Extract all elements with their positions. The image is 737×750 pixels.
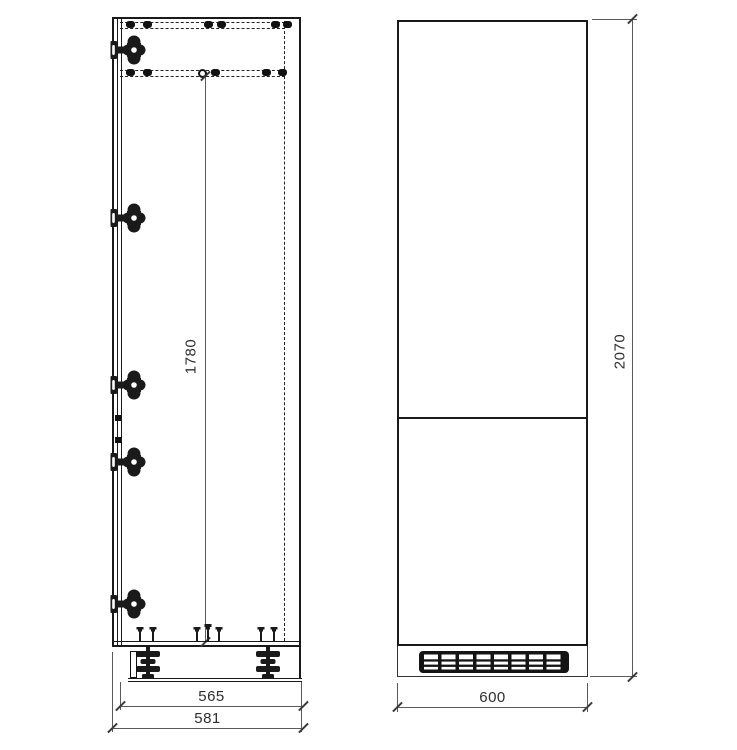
screw-icon — [215, 627, 223, 642]
plinth-bottom-line — [128, 678, 302, 679]
dimension-line-565 — [120, 706, 303, 707]
dimension-label-overall-depth: 581 — [112, 711, 303, 726]
dimension-line-600 — [397, 707, 588, 708]
front-view: 600 2070 — [360, 0, 737, 750]
ventilation-grille-icon — [419, 651, 569, 673]
screw-icon — [257, 627, 265, 642]
dimension-label-carcass-depth: 565 — [120, 689, 303, 704]
side-view: 1780 — [0, 0, 360, 750]
dimension-line-1780 — [205, 76, 206, 642]
front-outline — [397, 20, 588, 646]
top-rail-line — [120, 28, 285, 29]
dimension-label-interior-height: 1780 — [184, 335, 199, 379]
shelf-support-icon — [115, 437, 121, 443]
dimension-line-2070 — [632, 19, 633, 677]
side-back-edge-lower — [299, 647, 301, 679]
screw-icon — [136, 627, 144, 642]
side-outline — [112, 17, 301, 647]
dimension-label-width: 600 — [397, 690, 588, 705]
fitting-dowel-icon — [126, 21, 135, 28]
hinge-icon — [110, 445, 146, 479]
dimension-label-overall-height: 2070 — [613, 330, 628, 374]
hinge-icon — [110, 33, 146, 67]
front-door-divider — [399, 417, 586, 419]
dimension-line-581 — [112, 728, 303, 729]
adjustable-foot-icon — [253, 647, 283, 681]
plinth-bottom-line — [128, 681, 302, 682]
screw-icon — [149, 627, 157, 642]
fitting-dowel-icon — [271, 21, 280, 28]
technical-drawing-canvas: 1780 — [0, 0, 737, 750]
fitting-dowel-icon — [143, 69, 152, 76]
side-carcass-front-line — [121, 19, 122, 645]
side-back-hidden-line — [284, 21, 285, 641]
fitting-dowel-icon — [143, 21, 152, 28]
screw-icon — [270, 627, 278, 642]
fitting-dowel-icon — [126, 69, 135, 76]
side-door-back-line — [117, 19, 118, 645]
fitting-dowel-icon — [283, 21, 292, 28]
hinge-icon — [110, 201, 146, 235]
adjustable-foot-icon — [133, 647, 163, 681]
hinge-icon — [110, 587, 146, 621]
screw-icon — [193, 627, 201, 642]
shelf-support-icon — [115, 415, 121, 421]
fitting-dowel-icon — [204, 21, 213, 28]
fitting-dowel-icon — [278, 69, 287, 76]
screw-icon — [204, 624, 212, 642]
hinge-icon — [110, 368, 146, 402]
plinth-panel-edge — [130, 651, 137, 678]
fitting-dowel-icon — [262, 69, 271, 76]
fitting-dowel-icon — [217, 21, 226, 28]
fitting-dowel-icon — [211, 69, 220, 76]
